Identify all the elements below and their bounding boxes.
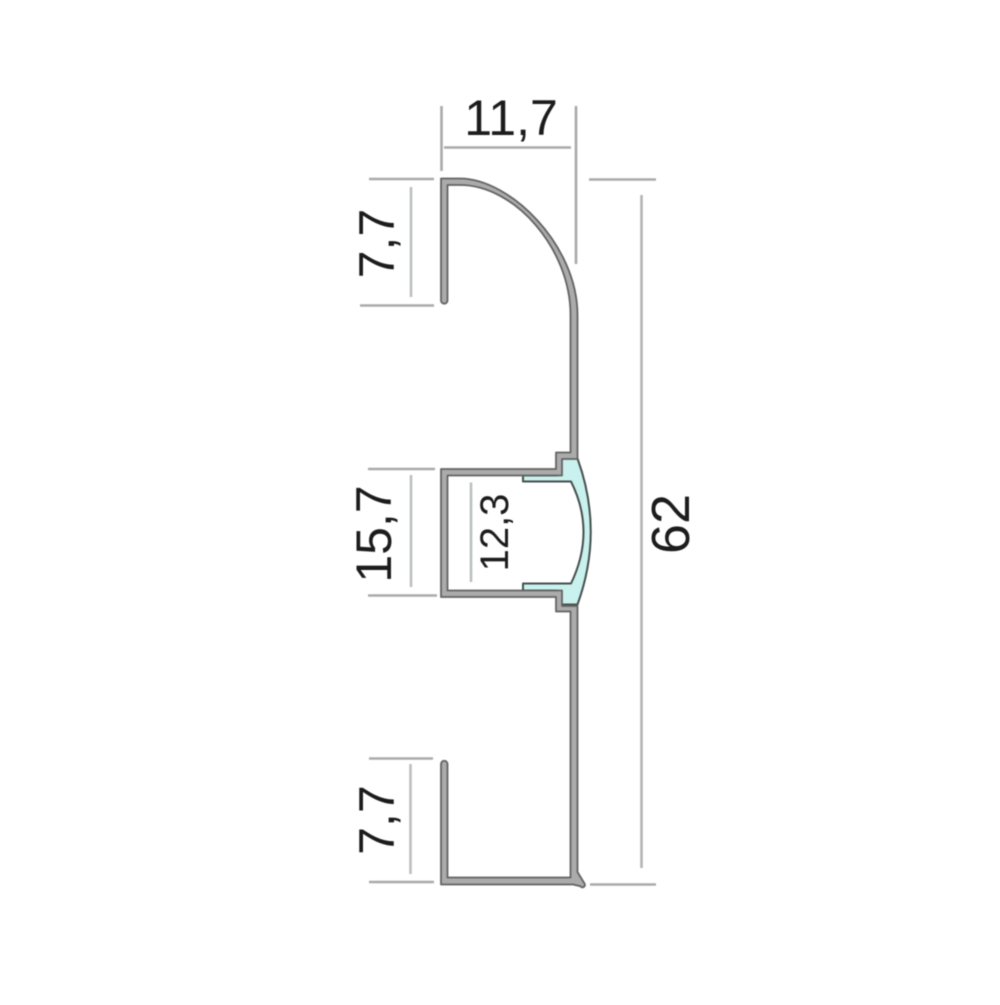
svg-text:15,7: 15,7 [346, 485, 402, 582]
svg-text:7,7: 7,7 [349, 785, 405, 855]
svg-text:12,3: 12,3 [473, 494, 517, 572]
svg-text:11,7: 11,7 [464, 90, 558, 146]
svg-text:7,7: 7,7 [349, 209, 405, 279]
svg-text:62: 62 [641, 494, 701, 554]
